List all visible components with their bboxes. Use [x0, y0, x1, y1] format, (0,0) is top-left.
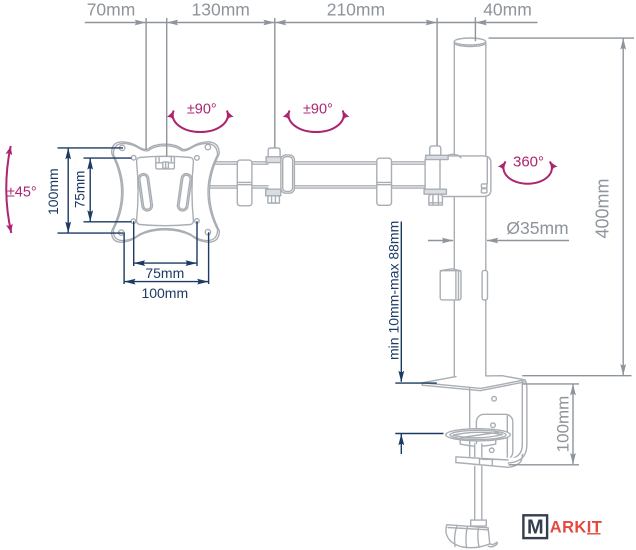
svg-text:100mm: 100mm [45, 168, 61, 215]
svg-text:M: M [527, 517, 544, 539]
svg-text:Ø35mm: Ø35mm [506, 218, 568, 238]
svg-text:70mm: 70mm [87, 0, 136, 20]
svg-text:75mm: 75mm [145, 265, 184, 281]
svg-text:±90°: ±90° [303, 102, 333, 118]
svg-text:±90°: ±90° [187, 102, 217, 118]
svg-text:210mm: 210mm [327, 0, 385, 20]
svg-text:100mm: 100mm [554, 396, 573, 453]
svg-text:75mm: 75mm [73, 171, 88, 209]
svg-text:min 10mm-max 88mm: min 10mm-max 88mm [385, 221, 401, 360]
svg-text:360°: 360° [513, 154, 544, 171]
svg-text:130mm: 130mm [192, 0, 250, 20]
svg-text:100mm: 100mm [141, 285, 188, 301]
svg-text:40mm: 40mm [483, 0, 532, 20]
svg-text:±45°: ±45° [7, 185, 37, 201]
svg-text:400mm: 400mm [593, 178, 613, 238]
